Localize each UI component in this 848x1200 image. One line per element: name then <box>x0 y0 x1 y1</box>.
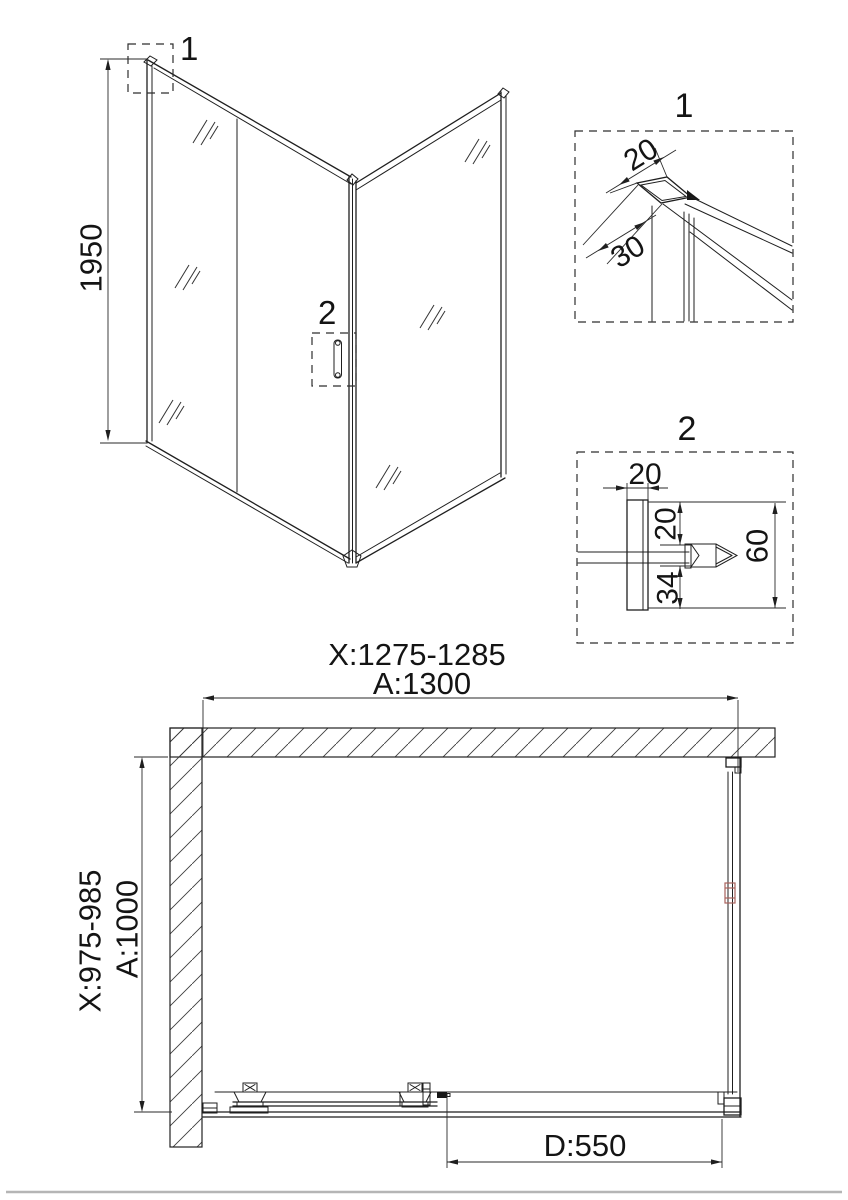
roller-right <box>399 1083 431 1107</box>
shower-enclosure-drawing: 1950 1 2 1 <box>0 0 848 1200</box>
detail-1-dim-30: 30 <box>605 229 651 275</box>
detail-1-dim-20: 20 <box>618 132 664 178</box>
detail-1-view: 1 20 30 <box>575 87 793 322</box>
plan-right-panel <box>718 757 741 1117</box>
wall-bracket-red <box>725 883 735 903</box>
detail-2-dim-total: 60 <box>740 529 775 563</box>
detail-1-dimensions: 20 30 <box>583 132 676 275</box>
plan-door-dimension: D:550 <box>447 1096 722 1168</box>
roller-left <box>234 1083 266 1107</box>
door-end-cap <box>437 1092 450 1098</box>
plan-view: X:1275-1285 A:1300 X:975-985 A:1000 <box>73 637 776 1168</box>
sliding-door <box>233 1092 437 1106</box>
detail-1-title: 1 <box>675 87 694 125</box>
detail-marker-1: 1 <box>180 30 198 67</box>
seal-profile <box>691 544 737 567</box>
detail-2-dimensions: 20 20 34 60 <box>603 458 786 609</box>
detail-2-dim-top: 20 <box>650 507 683 540</box>
wall-profile-bracket-top <box>726 758 741 773</box>
technical-drawing-page: 1950 1 2 1 <box>0 0 848 1200</box>
plan-width-label: A:1300 <box>373 666 471 701</box>
height-dimension: 1950 <box>74 59 148 443</box>
plan-depth-range-label: X:975-985 <box>73 869 108 1012</box>
wall-top <box>170 728 775 757</box>
top-rail-profile <box>637 177 792 321</box>
detail-2-dim-bottom: 34 <box>652 571 685 604</box>
detail-2-title: 2 <box>678 410 697 448</box>
plan-depth-dimension: X:975-985 A:1000 <box>73 757 173 1112</box>
perspective-view: 1950 1 2 <box>74 30 510 567</box>
detail-2-view: 2 20 20 <box>577 410 793 643</box>
plan-door-width-label: D:550 <box>544 1128 627 1163</box>
height-dimension-label: 1950 <box>74 224 109 293</box>
plan-depth-label: A:1000 <box>110 880 145 978</box>
door-handle <box>334 340 342 378</box>
glass-panel-right <box>356 88 509 563</box>
wall-left <box>170 728 202 1147</box>
detail-marker-2: 2 <box>318 294 336 331</box>
plan-door-assembly <box>203 1083 741 1117</box>
